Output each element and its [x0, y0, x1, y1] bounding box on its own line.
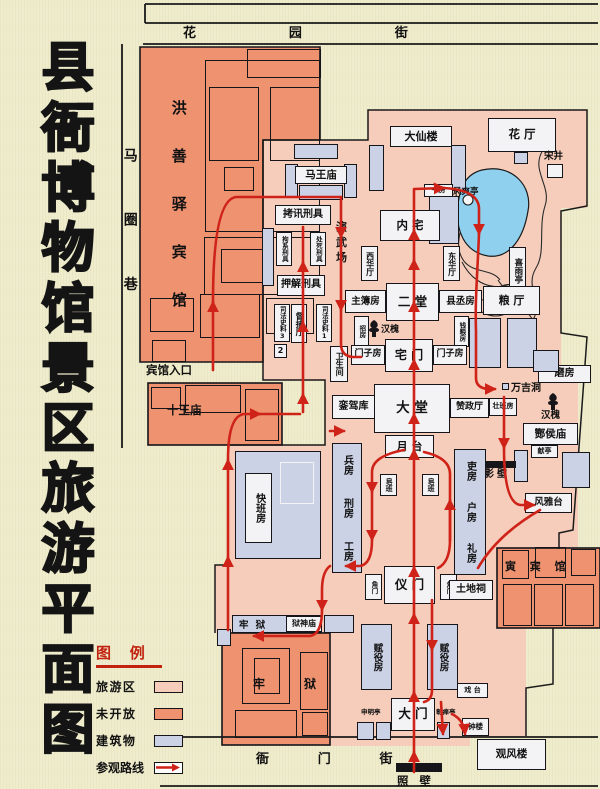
legend-title: 图 例 [96, 642, 206, 663]
legend-swatch-building [154, 735, 183, 747]
visit-route [213, 188, 540, 772]
route-arrow-icon [155, 763, 181, 772]
legend-label: 建筑物 [96, 732, 154, 749]
route-layer [0, 0, 600, 789]
legend-swatch-tourist [154, 681, 183, 693]
legend-swatch-route [154, 762, 183, 774]
legend-swatch-closed [154, 708, 183, 720]
legend-item-closed: 未开放 [96, 705, 206, 722]
legend-item-building: 建筑物 [96, 732, 206, 749]
legend-item-tourist: 旅游区 [96, 678, 206, 695]
legend-item-route: 参观路线 [96, 759, 206, 776]
legend-label: 旅游区 [96, 678, 154, 695]
legend-label: 未开放 [96, 705, 154, 722]
map-page: 县衙博物馆景区旅游平面图 花 园 街 马圈巷 衙 门 街 洪善驿宾馆 宾馆入口 … [0, 0, 600, 789]
legend-rule [96, 665, 162, 668]
legend: 图 例 旅游区 未开放 建筑物 参观路线 [96, 642, 206, 776]
legend-label: 参观路线 [96, 759, 154, 776]
